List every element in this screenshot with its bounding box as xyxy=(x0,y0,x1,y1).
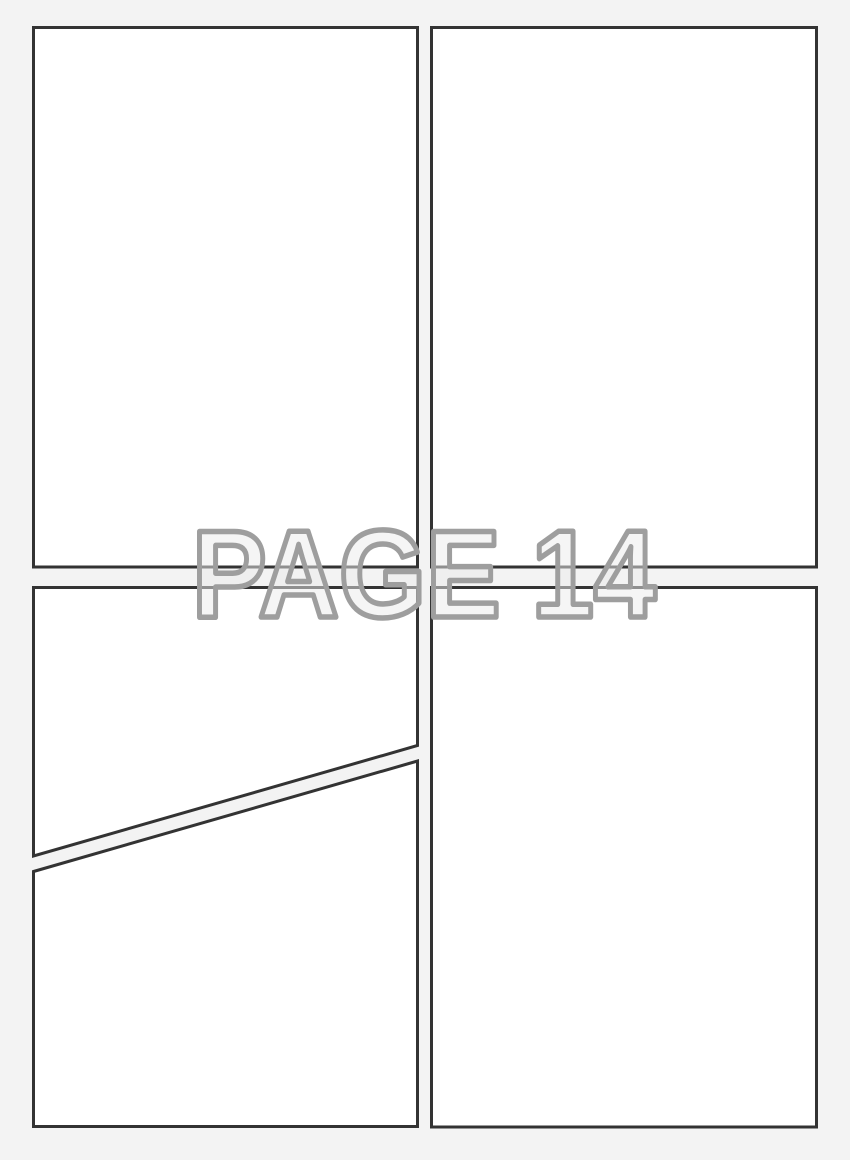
comic-page-template: PAGE 14 xyxy=(0,0,850,1160)
page-number-watermark: PAGE 14 xyxy=(192,506,656,644)
panel-top-right xyxy=(432,28,817,568)
panel-top-left xyxy=(34,28,418,568)
panel-bottom-right xyxy=(432,588,817,1128)
